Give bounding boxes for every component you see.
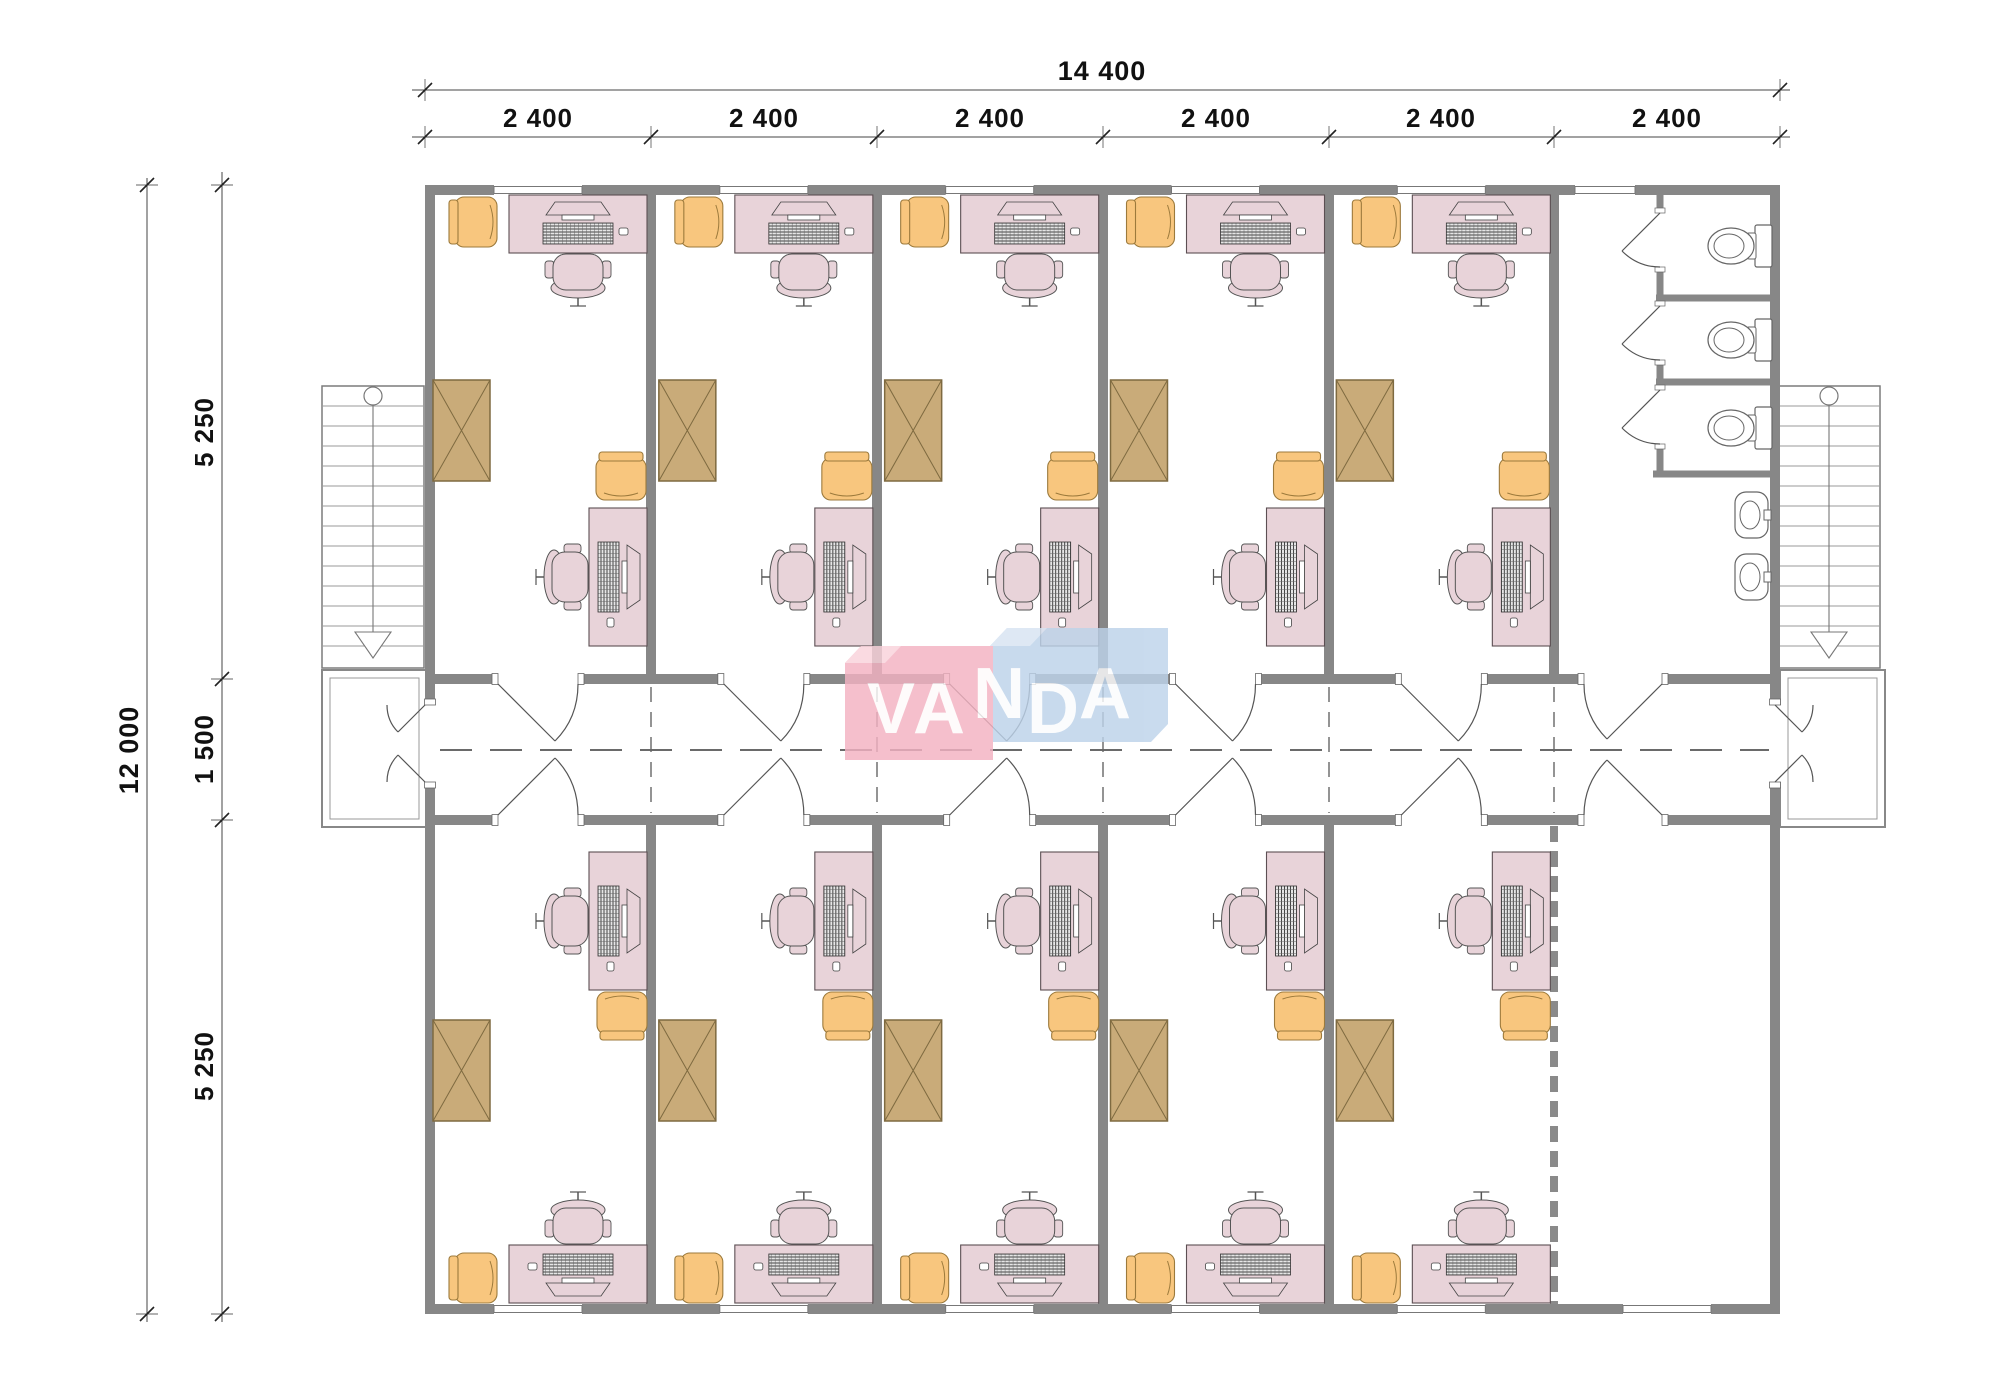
window [1397, 187, 1485, 194]
stall-door-jambs [1655, 208, 1665, 449]
window [1171, 187, 1259, 194]
workstation [1186, 195, 1324, 306]
dim-bay-label-1: 2 400 [503, 103, 573, 133]
guest-chair [1048, 452, 1098, 500]
dim-left-seg-label-2: 1 500 [189, 714, 219, 784]
office-room-top-1 [433, 185, 647, 741]
vanda-logo-watermark: V A N D A [845, 628, 1168, 760]
storage-room [1578, 760, 1711, 1314]
toilet [1708, 319, 1772, 361]
toilet [1708, 225, 1772, 267]
porch-left [322, 670, 427, 827]
guest-chair [596, 452, 646, 500]
door-swing [1401, 684, 1481, 741]
door-swing [498, 684, 578, 741]
window [720, 1306, 808, 1313]
guest-chair [901, 197, 949, 247]
dim-left-seg-label-1: 5 250 [189, 397, 219, 467]
offices-bottom [433, 758, 1550, 1314]
dim-top-total-label: 14 400 [1058, 56, 1147, 86]
cabinet [1110, 380, 1167, 481]
floor-plan-page: 14 400 2 400 2 400 2 400 2 400 2 400 2 4… [0, 0, 2000, 1380]
stairs-right [1778, 386, 1880, 668]
workstation [762, 852, 873, 990]
workstation [735, 195, 873, 306]
guest-chair [1352, 1253, 1400, 1303]
office-room-bottom-2 [659, 758, 873, 1314]
workstation [762, 508, 873, 646]
toilet-entry-door [1578, 673, 1668, 739]
dim-bay-label-2: 2 400 [729, 103, 799, 133]
guest-chair [1499, 452, 1549, 500]
toilet [1708, 407, 1772, 449]
stall-door-swing [1622, 213, 1660, 267]
dimension-lines-left: 12 000 5 250 1 500 5 250 [114, 172, 233, 1322]
window [720, 187, 808, 194]
cabinet [433, 380, 490, 481]
window [494, 1306, 582, 1313]
door-swing [724, 758, 804, 815]
cabinet [433, 1020, 490, 1121]
guest-chair [1273, 452, 1323, 500]
guest-chair [1126, 1253, 1174, 1303]
workstation [509, 1192, 647, 1303]
door-swing [1175, 684, 1255, 741]
guest-chair [1500, 992, 1550, 1040]
cabinet [885, 380, 942, 481]
floor-plan: 14 400 2 400 2 400 2 400 2 400 2 400 2 4… [0, 0, 2000, 1380]
office-room-bottom-5 [1336, 758, 1550, 1314]
guest-chair [449, 1253, 497, 1303]
door-swing [724, 684, 804, 741]
window [494, 187, 582, 194]
cabinet [659, 380, 716, 481]
office-room-top-5 [1336, 185, 1550, 741]
window [946, 187, 1034, 194]
workstation [961, 1192, 1099, 1303]
dimension-lines-top: 14 400 2 400 2 400 2 400 2 400 2 400 2 4… [412, 56, 1790, 148]
door-swing [1175, 758, 1255, 815]
toilet-fixtures [1708, 225, 1772, 449]
window [1397, 1306, 1485, 1313]
guest-chair [822, 452, 872, 500]
workstation [1213, 852, 1324, 990]
window [1171, 1306, 1259, 1313]
stall-door-swing [1622, 306, 1660, 360]
workstation [509, 195, 647, 306]
workstation [988, 508, 1099, 646]
workstation [536, 852, 647, 990]
sink [1735, 554, 1771, 600]
door-swing [950, 758, 1030, 815]
dim-bay-label-5: 2 400 [1406, 103, 1476, 133]
workstation [1213, 508, 1324, 646]
workstation [536, 508, 647, 646]
dim-bay-label-6: 2 400 [1632, 103, 1702, 133]
workstation [735, 1192, 873, 1303]
storage-door [1578, 760, 1668, 826]
guest-chair [901, 1253, 949, 1303]
dim-bay-label-3: 2 400 [955, 103, 1025, 133]
door-swing [1401, 758, 1481, 815]
stall-doors [1622, 213, 1660, 444]
guest-chair [1352, 197, 1400, 247]
stall-door-swing [1622, 390, 1660, 444]
cabinet [659, 1020, 716, 1121]
sink-fixtures [1735, 492, 1771, 600]
workstation [1412, 1192, 1550, 1303]
workstation [1412, 195, 1550, 306]
guest-chair [1274, 992, 1324, 1040]
office-room-bottom-1 [433, 758, 647, 1314]
guest-chair [597, 992, 647, 1040]
door-swing [498, 758, 578, 815]
office-room-top-2 [659, 185, 873, 741]
dim-left-seg-label-3: 5 250 [189, 1031, 219, 1101]
workstation [1439, 852, 1550, 990]
office-room-bottom-4 [1110, 758, 1324, 1314]
porch-right [1780, 670, 1885, 827]
dim-bay-label-4: 2 400 [1181, 103, 1251, 133]
office-room-bottom-3 [885, 758, 1099, 1314]
toilet-area [1575, 185, 1772, 739]
guest-chair [449, 197, 497, 247]
cabinet [1110, 1020, 1167, 1121]
guest-chair [675, 1253, 723, 1303]
cabinet [1336, 380, 1393, 481]
workstation [961, 195, 1099, 306]
window [946, 1306, 1034, 1313]
stairs-left [322, 386, 424, 668]
cabinet [885, 1020, 942, 1121]
guest-chair [675, 197, 723, 247]
guest-chair [1126, 197, 1174, 247]
dim-left-total-label: 12 000 [114, 706, 144, 795]
guest-chair [1049, 992, 1099, 1040]
workstation [1439, 508, 1550, 646]
cabinet [1336, 1020, 1393, 1121]
guest-chair [823, 992, 873, 1040]
workstation [988, 852, 1099, 990]
sink [1735, 492, 1771, 538]
workstation [1186, 1192, 1324, 1303]
